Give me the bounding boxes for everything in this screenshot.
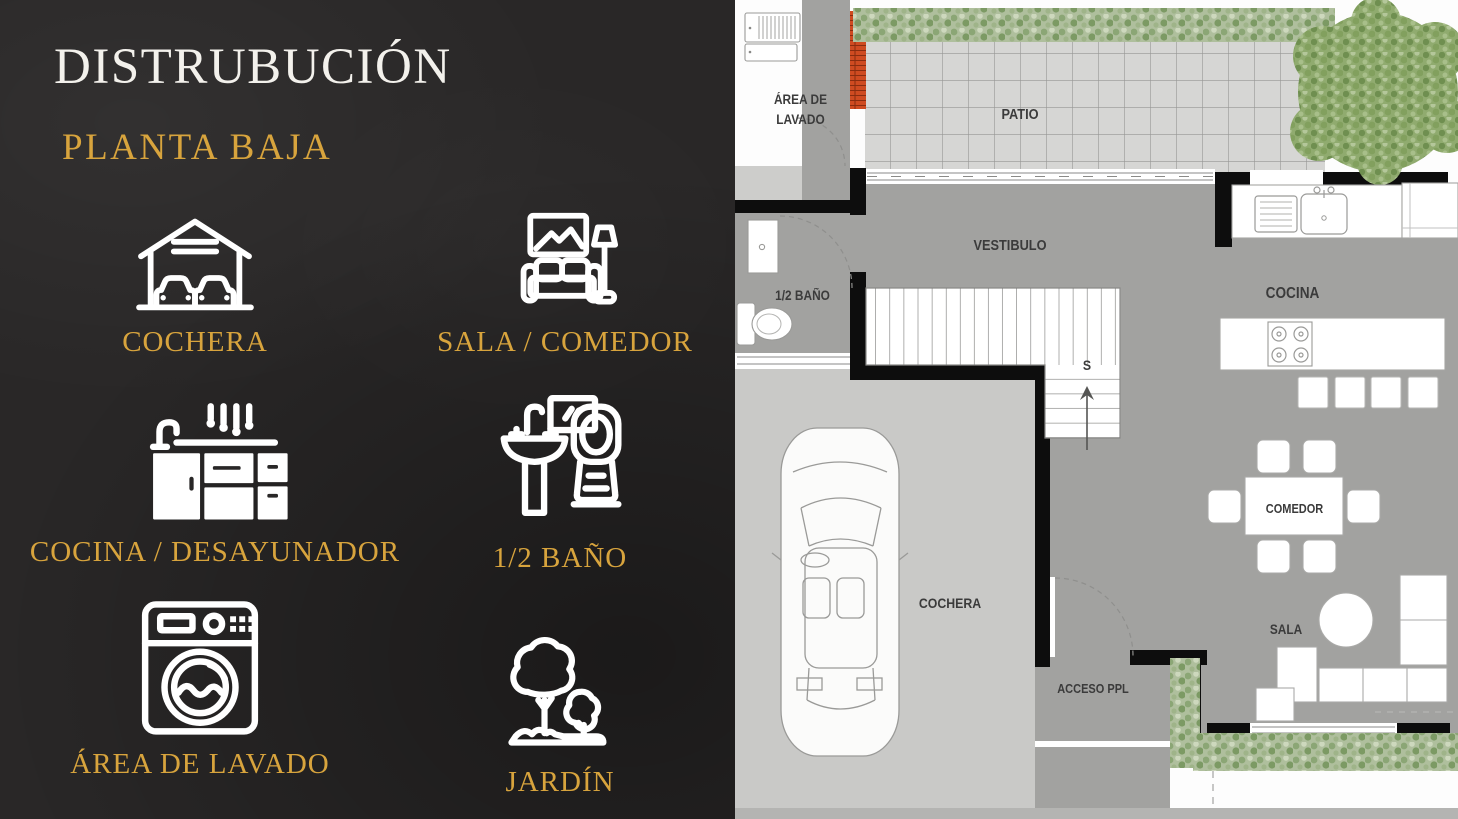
room-label-medio-bano: 1/2 BAÑO — [761, 286, 845, 306]
washing-machine-icon — [134, 598, 266, 740]
legend-label-cocina: COCINA / DESAYUNADOR — [30, 536, 400, 569]
toilet-sink-icon — [493, 394, 627, 534]
page-title: DISTRUBUCIÓN — [54, 38, 452, 96]
legend-label-cochera: COCHERA — [122, 326, 268, 359]
legend-label-lavado: ÁREA DE LAVADO — [70, 748, 329, 781]
legend-item-sala-comedor: SALA / COMEDOR — [420, 210, 710, 359]
room-label-acceso-ppl: ACCESO PPL — [1053, 680, 1134, 698]
room-label-patio: PATIO — [989, 105, 1051, 126]
stairs-direction-label: S — [1076, 355, 1097, 375]
room-label-vestibulo: VESTIBULO — [966, 236, 1054, 257]
washer-dryer — [745, 13, 800, 61]
patio-tiles — [865, 36, 1325, 173]
legend-item-lavado: ÁREA DE LAVADO — [40, 598, 360, 781]
kitchen-counter-icon — [139, 402, 291, 528]
legend-item-cocina: COCINA / DESAYUNADOR — [20, 402, 410, 569]
garden-trees-icon — [495, 632, 625, 758]
room-label-sala: SALA — [1255, 620, 1317, 640]
room-label-cochera: COCHERA — [915, 593, 985, 613]
room-label-comedor: COMEDOR — [1253, 500, 1337, 518]
left-panel: DISTRUBUCIÓN PLANTA BAJA COCHERA — [0, 0, 735, 819]
legend-item-jardin: JARDÍN — [430, 632, 690, 799]
slide: DISTRUBUCIÓN PLANTA BAJA COCHERA — [0, 0, 1458, 819]
kitchen-counter — [1232, 183, 1458, 238]
room-label-area-de-lavado: ÁREA DE LAVADO — [759, 90, 843, 129]
legend-item-bano: 1/2 BAÑO — [440, 394, 680, 575]
legend-label-sala-comedor: SALA / COMEDOR — [437, 326, 693, 359]
sofa-lamp-icon — [494, 210, 636, 318]
floor-plan: ÁREA DE LAVADO PATIO VESTIBULO 1/2 BAÑO … — [735, 0, 1458, 819]
garage-icon — [125, 210, 265, 318]
page-subtitle: PLANTA BAJA — [62, 126, 332, 169]
room-label-cocina: COCINA — [1255, 283, 1330, 305]
legend-label-bano: 1/2 BAÑO — [493, 542, 627, 575]
car-topview — [772, 428, 908, 756]
legend-item-cochera: COCHERA — [70, 210, 320, 359]
legend-label-jardin: JARDÍN — [505, 766, 614, 799]
